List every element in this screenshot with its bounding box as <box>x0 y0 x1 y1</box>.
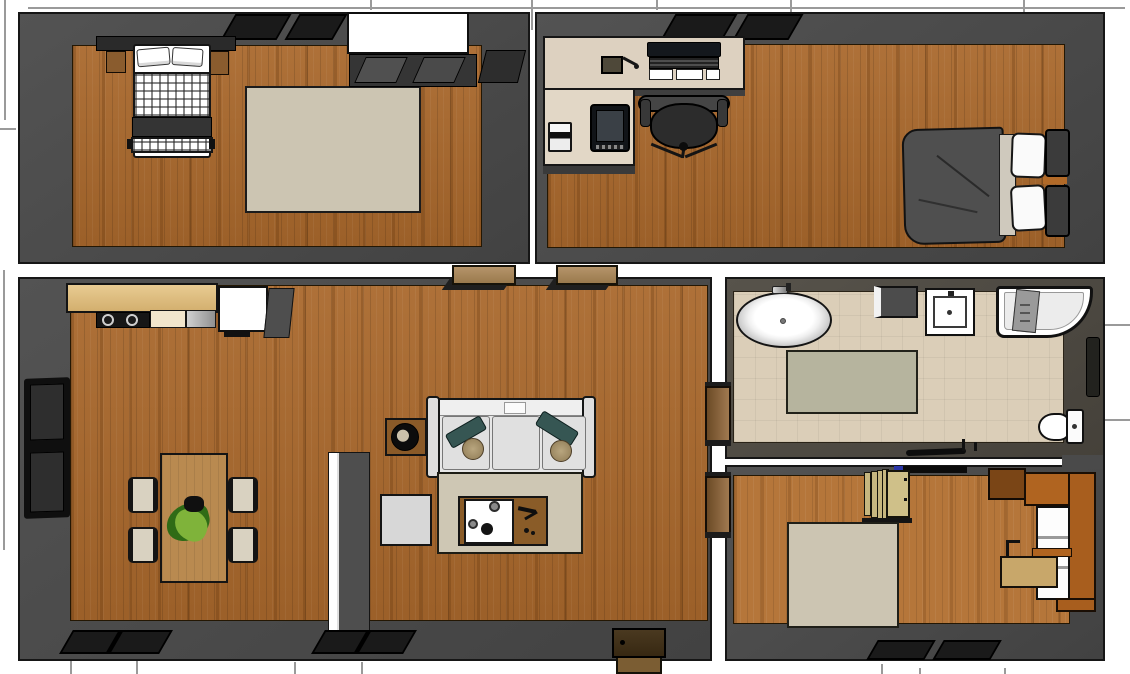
section-line <box>531 0 533 30</box>
cabinet-front <box>150 310 186 328</box>
burner-icon <box>126 314 138 326</box>
bathroom-cabinet <box>874 286 918 318</box>
desk-unit-side <box>1068 472 1096 608</box>
headboard-cushion <box>1045 185 1070 237</box>
desk-lamp-head <box>634 64 639 69</box>
drain-icon <box>780 318 786 324</box>
pillow <box>1010 132 1047 178</box>
section-line <box>370 0 372 10</box>
refrigerator-side <box>263 288 294 338</box>
dining-chair <box>228 477 258 513</box>
toilet-button <box>1072 424 1077 429</box>
throw-pillow-round <box>550 440 572 462</box>
bed-foot-strap <box>209 139 215 149</box>
throw-pillow-round <box>462 438 484 460</box>
partial-wall <box>328 452 370 642</box>
monitor-vent-band <box>649 57 719 69</box>
drain-icon <box>947 310 952 315</box>
section-line <box>919 668 921 674</box>
keyboard-part <box>706 69 720 80</box>
wall-hook <box>962 439 965 451</box>
door-cap <box>705 440 731 446</box>
folding-screen-slat <box>864 472 871 516</box>
checkered-foot-blanket <box>131 137 213 153</box>
shelf-line <box>1038 536 1068 539</box>
faucet-icon <box>786 283 791 291</box>
pillow <box>171 47 203 67</box>
wall-hook <box>974 442 977 451</box>
table-decor <box>531 531 535 535</box>
tablet-screen <box>596 110 624 142</box>
sofa-arm <box>426 396 440 478</box>
headboard-accent <box>1043 177 1067 184</box>
area-rug <box>787 522 899 628</box>
checkered-duvet <box>133 72 211 118</box>
door-leaf <box>705 476 731 534</box>
screen-hinge-dot <box>904 498 907 501</box>
record-disc <box>391 423 419 451</box>
bowl-icon <box>481 523 493 535</box>
bed-foot-strap <box>127 139 133 149</box>
overhead-cabinet <box>988 468 1026 500</box>
window-glass <box>30 451 64 512</box>
cup-icon <box>468 519 478 529</box>
desk-organizer <box>601 56 623 74</box>
section-line <box>3 270 5 550</box>
doorway-threshold <box>452 265 516 285</box>
section-line <box>28 7 1125 9</box>
tablet-buttons <box>596 145 624 149</box>
dishwasher-front <box>186 310 216 328</box>
desk-shadow <box>543 166 635 174</box>
section-line <box>4 0 6 120</box>
shower-panel-marks <box>1020 298 1030 322</box>
window-icon <box>932 640 1002 660</box>
office-chair-arm <box>640 99 651 127</box>
storage-box <box>347 12 469 54</box>
window-icon <box>866 640 936 660</box>
section-line <box>136 660 138 674</box>
chair-hub <box>679 142 688 151</box>
entry-step <box>616 658 662 674</box>
section-line <box>1004 668 1006 674</box>
sofa-blanket <box>504 402 526 414</box>
section-line <box>656 0 658 10</box>
table-decor <box>524 528 529 533</box>
cabinet-slab <box>478 50 526 83</box>
kitchen-counter <box>66 283 218 313</box>
plant-pot <box>184 496 204 512</box>
refrigerator <box>218 286 268 332</box>
floor-plan-canvas <box>0 0 1130 674</box>
door-leaf <box>705 386 731 442</box>
bench <box>1000 556 1058 588</box>
screen-hinge-dot <box>904 478 907 481</box>
section-line <box>0 128 16 130</box>
sofa-cushion <box>492 416 540 470</box>
faucet-icon <box>948 291 954 296</box>
dining-chair <box>128 527 158 563</box>
pillow <box>1010 184 1047 232</box>
section-line <box>881 664 883 674</box>
keyboard-part <box>676 69 703 80</box>
monitor <box>647 42 721 57</box>
printer <box>548 122 572 152</box>
headboard-cushion <box>1045 129 1070 177</box>
side-table <box>380 494 432 546</box>
wall-tv-bar <box>903 466 967 473</box>
office-chair-arm <box>717 99 728 127</box>
door-cap <box>705 532 731 538</box>
door-handle <box>620 640 625 645</box>
dining-chair <box>128 477 158 513</box>
burner-icon <box>102 314 114 326</box>
cup-icon <box>489 501 500 512</box>
section-line <box>70 660 72 674</box>
area-rug <box>245 86 421 213</box>
doorway-threshold <box>556 265 618 285</box>
bed-duvet-dark <box>901 127 1006 246</box>
refrigerator-base <box>224 332 250 337</box>
wall-connector <box>1062 455 1105 469</box>
duvet-dark-band <box>132 117 212 137</box>
nightstand <box>106 51 126 73</box>
window-glass <box>30 383 64 440</box>
towel-niche <box>1086 337 1100 397</box>
bath-rug <box>786 350 918 414</box>
dining-chair <box>228 527 258 563</box>
bench-bracket <box>1006 540 1020 543</box>
keyboard-part <box>649 69 673 80</box>
desk-unit-bottom <box>1056 598 1096 612</box>
section-line <box>294 662 296 674</box>
pillow <box>136 47 170 68</box>
section-line <box>361 662 363 674</box>
